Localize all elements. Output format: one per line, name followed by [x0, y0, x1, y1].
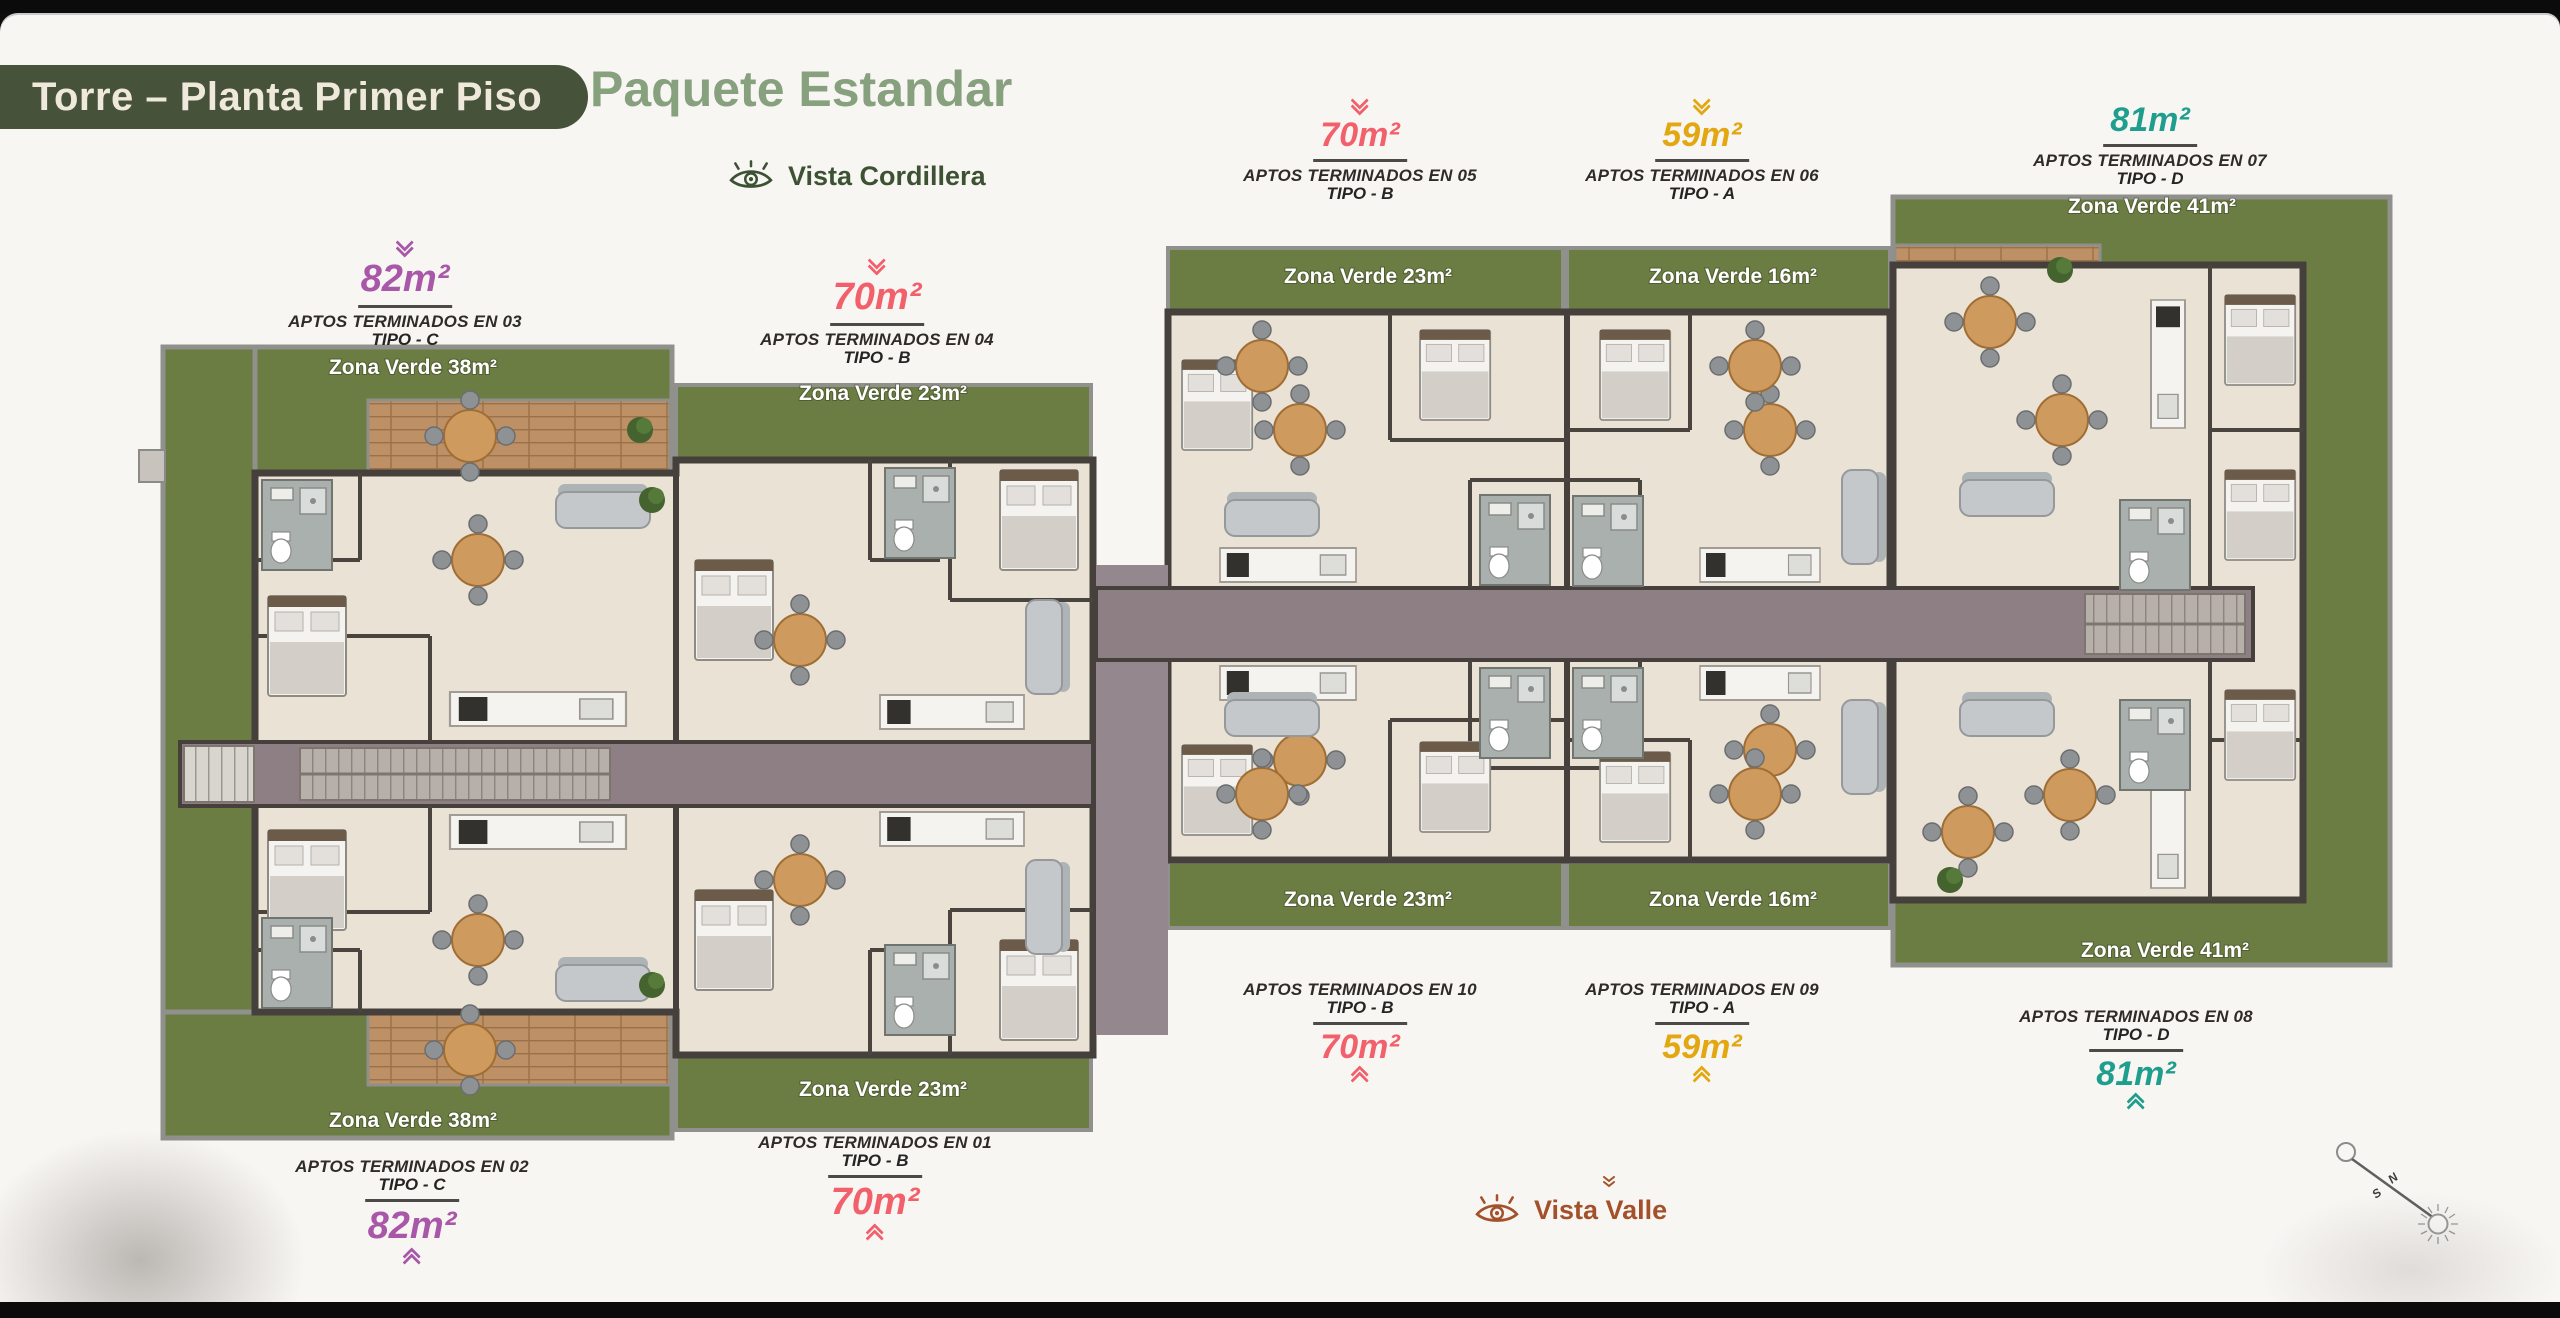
- kitchen-counter: [1700, 548, 1820, 582]
- bed: [1600, 752, 1670, 842]
- apartment-area: 82m²: [288, 260, 522, 300]
- apartment-tipo: TIPO - C: [288, 331, 522, 349]
- plant: [627, 417, 653, 443]
- green-zone-label: Zona Verde 23m²: [1284, 888, 1452, 911]
- apartment-caption: APTOS TERMINADOS EN 02: [295, 1158, 529, 1176]
- kitchen-counter: [880, 695, 1024, 729]
- apartment-tipo: TIPO - A: [1585, 185, 1819, 203]
- eye-icon: [1474, 1194, 1520, 1226]
- apartment-caption: APTOS TERMINADOS EN 04: [760, 331, 994, 349]
- apartment-label-09: APTOS TERMINADOS EN 09 TIPO - A 59m²: [1585, 981, 1819, 1092]
- bathroom: [2120, 500, 2190, 590]
- apartment-label-06: 59m² APTOS TERMINADOS EN 06 TIPO - A: [1585, 94, 1819, 202]
- bathroom: [885, 468, 955, 558]
- apartment-tipo: TIPO - B: [1243, 999, 1477, 1017]
- bathroom: [262, 918, 332, 1008]
- bathroom: [2120, 700, 2190, 790]
- screenshot-stage: Zona Verde 38m² Zona Verde 23m² Zona Ver…: [0, 0, 2560, 1318]
- apartment-tipo: TIPO - A: [1585, 999, 1819, 1017]
- sofa: [1225, 492, 1319, 536]
- apartment-area: 70m²: [760, 278, 994, 318]
- bathroom: [262, 480, 332, 570]
- bed: [1000, 470, 1078, 570]
- apartment-label-07: 81m² APTOS TERMINADOS EN 07 TIPO - D: [2033, 103, 2267, 187]
- right-corridor-stairs: [2085, 594, 2245, 654]
- apartment-caption: APTOS TERMINADOS EN 07: [2033, 152, 2267, 170]
- sofa: [556, 957, 650, 1001]
- green-zone-label: Zona Verde 23m²: [799, 382, 967, 405]
- label-divider: [1313, 1022, 1407, 1025]
- apartment-caption: APTOS TERMINADOS EN 05: [1243, 167, 1477, 185]
- bed: [1600, 330, 1670, 420]
- sofa: [1026, 860, 1070, 954]
- green-zone-label: Zona Verde 23m²: [1284, 265, 1452, 288]
- apartment-caption: APTOS TERMINADOS EN 09: [1585, 981, 1819, 999]
- apartment-caption: APTOS TERMINADOS EN 03: [288, 313, 522, 331]
- bathroom: [1573, 668, 1643, 758]
- green-zone-label: Zona Verde 16m²: [1649, 888, 1817, 911]
- bathroom: [1480, 495, 1550, 585]
- bed: [268, 830, 346, 930]
- apartment-caption: APTOS TERMINADOS EN 06: [1585, 167, 1819, 185]
- apartment-area: 82m²: [295, 1207, 529, 1247]
- kitchen-counter: [880, 812, 1024, 846]
- sofa: [1026, 600, 1070, 694]
- apartment-label-02: APTOS TERMINADOS EN 02 TIPO - C 82m²: [295, 1158, 529, 1274]
- label-divider: [1655, 159, 1749, 162]
- apartment-label-03: 82m² APTOS TERMINADOS EN 03 TIPO - C: [288, 236, 522, 349]
- vista-cordillera-label: Vista Cordillera: [728, 160, 986, 192]
- eye-icon: [728, 160, 774, 192]
- double-chevron-up-icon: [2019, 1095, 2253, 1117]
- apartment-label-10: APTOS TERMINADOS EN 10 TIPO - B 70m²: [1243, 981, 1477, 1092]
- apartment-label-05: 70m² APTOS TERMINADOS EN 05 TIPO - B: [1243, 94, 1477, 202]
- apartment-caption: APTOS TERMINADOS EN 10: [1243, 981, 1477, 999]
- bed: [268, 596, 346, 696]
- label-divider: [365, 1199, 459, 1202]
- compass-axis-line: [2352, 1159, 2438, 1221]
- apartment-area: 70m²: [1243, 1030, 1477, 1066]
- sofa: [1960, 472, 2054, 516]
- page-title: Torre – Planta Primer Piso: [32, 75, 542, 120]
- label-divider: [2103, 144, 2197, 147]
- bed: [2225, 470, 2295, 560]
- apartment-area: 81m²: [2033, 103, 2267, 139]
- vista-valle-label: Vista Valle: [1474, 1194, 1667, 1226]
- apartment-tipo: TIPO - B: [758, 1152, 992, 1170]
- apartment-label-01: APTOS TERMINADOS EN 01 TIPO - B 70m²: [758, 1134, 992, 1250]
- double-chevron-up-icon: [1243, 1068, 1477, 1090]
- vista-valle-text: Vista Valle: [1534, 1195, 1667, 1226]
- apartment-tipo: TIPO - B: [1243, 185, 1477, 203]
- double-chevron-up-icon: [1585, 1068, 1819, 1090]
- apartment-area: 81m²: [2019, 1057, 2253, 1093]
- kitchen-counter: [1220, 548, 1356, 582]
- label-divider: [2089, 1049, 2183, 1052]
- apartment-area: 70m²: [1243, 118, 1477, 154]
- floorplan-canvas: Zona Verde 38m² Zona Verde 23m² Zona Ver…: [0, 13, 2560, 1302]
- apartment-caption: APTOS TERMINADOS EN 08: [2019, 1008, 2253, 1026]
- green-zone-label: Zona Verde 16m²: [1649, 265, 1817, 288]
- apartment-tipo: TIPO - D: [2019, 1026, 2253, 1044]
- apartment-caption: APTOS TERMINADOS EN 01: [758, 1134, 992, 1152]
- sofa: [1225, 692, 1319, 736]
- apartment-tipo: TIPO - C: [295, 1176, 529, 1194]
- sofa: [556, 484, 650, 528]
- bathroom: [1480, 668, 1550, 758]
- green-zone-label: Zona Verde 38m²: [329, 356, 497, 379]
- bed: [2225, 690, 2295, 780]
- plant: [1937, 867, 1963, 893]
- double-chevron-down-icon: [760, 254, 994, 276]
- label-divider: [828, 1175, 922, 1178]
- compass-sun-icon: [2429, 1215, 2448, 1234]
- apartment-label-04: 70m² APTOS TERMINADOS EN 04 TIPO - B: [760, 254, 994, 367]
- apartment-label-08: APTOS TERMINADOS EN 08 TIPO - D 81m²: [2019, 1008, 2253, 1119]
- green-zone-label: Zona Verde 23m²: [799, 1078, 967, 1101]
- plant: [639, 972, 665, 998]
- label-divider: [358, 305, 452, 308]
- double-chevron-up-icon: [758, 1226, 992, 1248]
- compass-south-label: S: [2369, 1185, 2384, 1201]
- kitchen-island: [2151, 300, 2185, 428]
- kitchen-counter: [1700, 666, 1820, 700]
- apartment-area: 59m²: [1585, 1030, 1819, 1066]
- floorplan-sheet: Zona Verde 38m² Zona Verde 23m² Zona Ver…: [0, 13, 2560, 1302]
- green-zone-label: Zona Verde 41m²: [2068, 195, 2236, 218]
- vista-cordillera-text: Vista Cordillera: [788, 161, 986, 192]
- sofa: [1842, 470, 1886, 564]
- double-chevron-down-icon: [1585, 94, 1819, 116]
- green-zone-label: Zona Verde 41m²: [2081, 939, 2249, 962]
- bathroom: [885, 945, 955, 1035]
- double-chevron-down-icon: [1243, 94, 1477, 116]
- bathroom: [1573, 496, 1643, 586]
- top-window-bar: [0, 0, 2560, 13]
- bottom-window-bar: [0, 1302, 2560, 1318]
- label-divider: [1655, 1022, 1749, 1025]
- bed: [695, 890, 773, 990]
- apartment-tipo: TIPO - D: [2033, 170, 2267, 188]
- label-divider: [1313, 159, 1407, 162]
- compass: N S: [2337, 1143, 2458, 1244]
- plant: [2047, 257, 2073, 283]
- page-title-pill: Torre – Planta Primer Piso: [0, 65, 588, 129]
- page-subtitle: Paquete Estandar: [590, 60, 1012, 118]
- kitchen-counter: [450, 815, 626, 849]
- plant: [639, 487, 665, 513]
- sofa: [1842, 700, 1886, 794]
- sofa: [1960, 692, 2054, 736]
- bed: [2225, 295, 2295, 385]
- apartment-area: 70m²: [758, 1183, 992, 1223]
- double-chevron-down-icon: [288, 236, 522, 258]
- small-double-chevron-down-icon: [1602, 1176, 1616, 1188]
- left-entry-steps: [184, 746, 254, 802]
- bed: [1420, 330, 1490, 420]
- right-building-corridor: [1096, 588, 2253, 660]
- kitchen-counter: [450, 692, 626, 726]
- double-chevron-up-icon: [295, 1250, 529, 1272]
- apartment-area: 59m²: [1585, 118, 1819, 154]
- apartment-tipo: TIPO - B: [760, 349, 994, 367]
- left-entry-canopy: [139, 450, 165, 482]
- left-corridor-stairs: [300, 748, 610, 800]
- green-zone-label: Zona Verde 38m²: [329, 1109, 497, 1132]
- label-divider: [830, 323, 924, 326]
- compass-moon-icon: [2337, 1143, 2355, 1161]
